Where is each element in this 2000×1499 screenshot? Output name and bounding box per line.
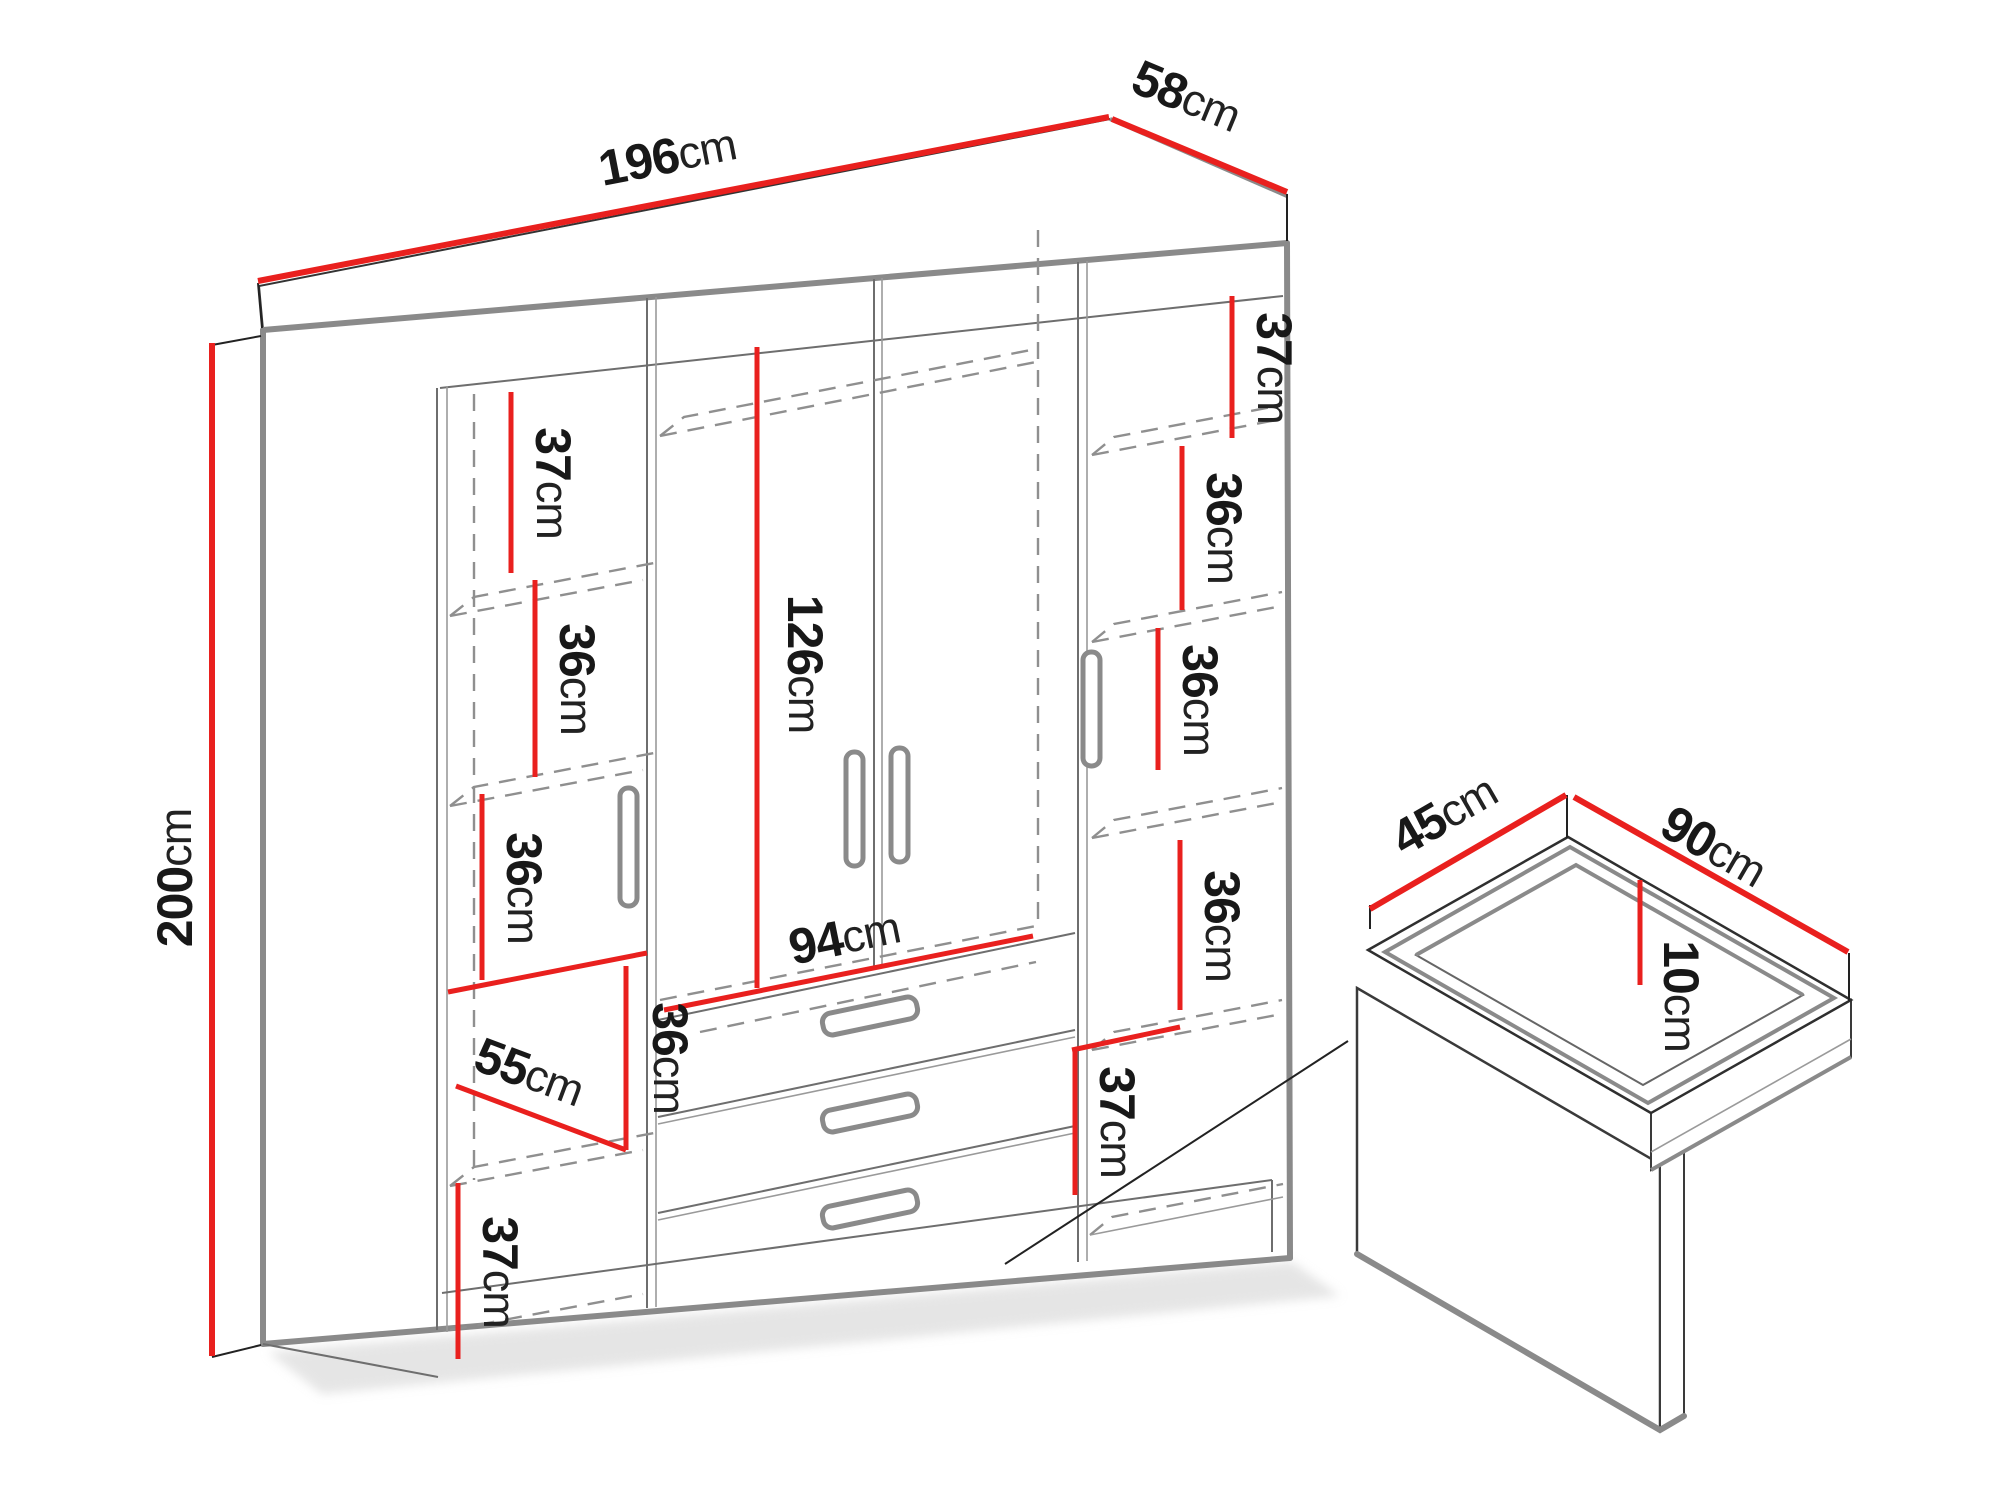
dim-label-right-shelf-4: 36cm	[1194, 870, 1250, 982]
diagram-canvas: 196cm 58cm 200cm 37cm 36cm 36cm 36cm 55c…	[0, 0, 2000, 1499]
dim-label-right-shelf-3: 36cm	[1172, 644, 1228, 756]
wardrobe-diagram-svg: 196cm 58cm 200cm 37cm 36cm 36cm 36cm 55c…	[0, 0, 2000, 1499]
wardrobe-body	[259, 119, 1290, 1377]
dim-label-hanging-height: 126cm	[777, 595, 833, 733]
dim-label-left-shelf-top: 37cm	[525, 427, 581, 539]
door-handle	[1083, 652, 1100, 766]
dim-label-left-above-drawers: 36cm	[642, 1002, 698, 1114]
dim-label-right-shelf-top: 37cm	[1246, 312, 1302, 424]
dim-label-height: 200cm	[147, 809, 203, 947]
dim-label-drawer-depth: 45cm	[1382, 763, 1507, 867]
drawer-front-panel-side	[1660, 1150, 1684, 1430]
dim-label-drawer-height: 10cm	[1653, 940, 1709, 1052]
dim-label-right-shelf-2: 36cm	[1196, 472, 1252, 584]
dim-label-left-shelf-3: 36cm	[496, 832, 552, 944]
dim-label-right-shelf-bottom: 37cm	[1089, 1066, 1145, 1178]
dim-label-left-shelf-bottom: 37cm	[472, 1216, 528, 1328]
dim-label-width: 196cm	[594, 116, 741, 197]
door-handle	[620, 788, 637, 906]
dim-label-drawer-width: 90cm	[1652, 795, 1777, 899]
door-handle	[846, 752, 863, 866]
dim-label-left-shelf-2: 36cm	[549, 623, 605, 735]
door-handle	[891, 748, 908, 862]
